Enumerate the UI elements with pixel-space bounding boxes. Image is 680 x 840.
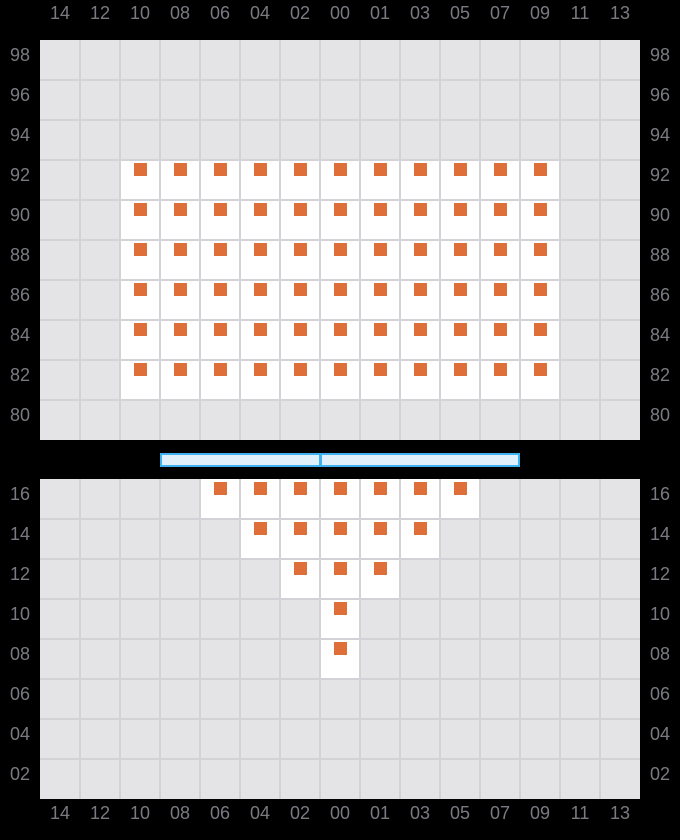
grid-cell-14-80[interactable] [40,400,80,440]
grid-cell-06-90[interactable] [200,200,240,240]
grid-cell-07-90[interactable] [480,200,520,240]
grid-cell-05-80[interactable] [440,400,480,440]
grid-cell-12-84[interactable] [80,320,120,360]
grid-cell-02-98[interactable] [280,40,320,80]
grid-cell-04-06[interactable] [240,679,280,719]
grid-cell-06-12[interactable] [200,559,240,599]
grid-cell-12-88[interactable] [80,240,120,280]
column-label: 01 [360,801,400,826]
grid-cell-01-90[interactable] [360,200,400,240]
grid-cell-00-98[interactable] [320,40,360,80]
grid-cell-08-14[interactable] [160,519,200,559]
grid-cell-01-14[interactable] [360,519,400,559]
row-label: 96 [640,75,680,115]
grid-cell-14-92[interactable] [40,160,80,200]
grid-cell-09-96[interactable] [520,80,560,120]
grid-cell-14-90[interactable] [40,200,80,240]
grid-cell-10-02[interactable] [120,759,160,799]
grid-cell-01-82[interactable] [360,360,400,400]
grid-cell-06-98[interactable] [200,40,240,80]
grid-cell-04-08[interactable] [240,639,280,679]
grid-cell-05-90[interactable] [440,200,480,240]
grid-cell-11-88[interactable] [560,240,600,280]
grid-cell-13-04[interactable] [600,719,640,759]
grid-cell-01-16[interactable] [360,479,400,519]
grid-cell-02-06[interactable] [280,679,320,719]
grid-cell-11-06[interactable] [560,679,600,719]
grid-cell-13-86[interactable] [600,280,640,320]
grid-cell-09-06[interactable] [520,679,560,719]
row-label: 10 [0,594,40,634]
grid-cell-13-10[interactable] [600,599,640,639]
grid-cell-13-96[interactable] [600,80,640,120]
grid-cell-10-90[interactable] [120,200,160,240]
grid-cell-07-04[interactable] [480,719,520,759]
grid-cell-08-02[interactable] [160,759,200,799]
grid-cell-12-98[interactable] [80,40,120,80]
grid-cell-03-04[interactable] [400,719,440,759]
grid-cell-05-94[interactable] [440,120,480,160]
grid-cell-14-06[interactable] [40,679,80,719]
row-label: 02 [640,754,680,794]
grid-cell-11-02[interactable] [560,759,600,799]
grid-cell-10-12[interactable] [120,559,160,599]
grid-cell-09-92[interactable] [520,160,560,200]
grid-cell-03-88[interactable] [400,240,440,280]
grid-cell-01-10[interactable] [360,599,400,639]
column-label: 08 [160,0,200,27]
grid-cell-05-06[interactable] [440,679,480,719]
grid-cell-03-12[interactable] [400,559,440,599]
grid-cell-09-10[interactable] [520,599,560,639]
grid-cell-07-08[interactable] [480,639,520,679]
row-label: 88 [0,235,40,275]
grid-cell-01-92[interactable] [360,160,400,200]
grid-cell-00-08[interactable] [320,639,360,679]
grid-cell-05-88[interactable] [440,240,480,280]
grid-cell-14-96[interactable] [40,80,80,120]
grid-cell-08-08[interactable] [160,639,200,679]
grid-cell-02-86[interactable] [280,280,320,320]
grid-cell-08-88[interactable] [160,240,200,280]
grid-cell-14-08[interactable] [40,639,80,679]
grid-cell-03-94[interactable] [400,120,440,160]
grid-cell-11-92[interactable] [560,160,600,200]
grid-cell-00-84[interactable] [320,320,360,360]
grid-cell-08-10[interactable] [160,599,200,639]
grid-cell-10-84[interactable] [120,320,160,360]
grid-cell-07-06[interactable] [480,679,520,719]
grid-cell-03-98[interactable] [400,40,440,80]
grid-cell-08-06[interactable] [160,679,200,719]
grid-cell-13-82[interactable] [600,360,640,400]
grid-cell-00-04[interactable] [320,719,360,759]
grid-cell-11-80[interactable] [560,400,600,440]
grid-cell-05-92[interactable] [440,160,480,200]
grid-cell-11-82[interactable] [560,360,600,400]
grid-cell-02-96[interactable] [280,80,320,120]
grid-cell-01-08[interactable] [360,639,400,679]
grid-cell-00-88[interactable] [320,240,360,280]
grid-cell-01-94[interactable] [360,120,400,160]
grid-cell-13-98[interactable] [600,40,640,80]
grid-cell-03-86[interactable] [400,280,440,320]
grid-cell-12-14[interactable] [80,519,120,559]
column-label: 12 [80,0,120,27]
grid-cell-13-08[interactable] [600,639,640,679]
grid-cell-03-84[interactable] [400,320,440,360]
grid-cell-08-16[interactable] [160,479,200,519]
grid-cell-05-96[interactable] [440,80,480,120]
grid-cell-08-84[interactable] [160,320,200,360]
row-label: 98 [0,35,40,75]
grid-cell-04-10[interactable] [240,599,280,639]
grid-cell-10-08[interactable] [120,639,160,679]
grid-cell-06-86[interactable] [200,280,240,320]
row-label: 04 [640,714,680,754]
grid-cell-01-12[interactable] [360,559,400,599]
grid-cell-13-84[interactable] [600,320,640,360]
grid-cell-02-88[interactable] [280,240,320,280]
grid-cell-06-02[interactable] [200,759,240,799]
column-label: 03 [400,801,440,826]
grid-cell-14-94[interactable] [40,120,80,160]
row-label: 80 [640,395,680,435]
grid-cell-12-06[interactable] [80,679,120,719]
grid-cell-06-94[interactable] [200,120,240,160]
grid-cell-03-14[interactable] [400,519,440,559]
grid-cell-13-90[interactable] [600,200,640,240]
grid-cell-07-92[interactable] [480,160,520,200]
grid-cell-14-02[interactable] [40,759,80,799]
grid-cell-05-02[interactable] [440,759,480,799]
grid-cell-11-94[interactable] [560,120,600,160]
grid-cell-10-98[interactable] [120,40,160,80]
column-label: 07 [480,801,520,826]
grid-cell-08-90[interactable] [160,200,200,240]
column-label: 11 [560,801,600,826]
grid-cell-10-04[interactable] [120,719,160,759]
grid-cell-09-12[interactable] [520,559,560,599]
grid-cell-07-02[interactable] [480,759,520,799]
grid-cell-04-86[interactable] [240,280,280,320]
grid-cell-00-90[interactable] [320,200,360,240]
grid-cell-05-82[interactable] [440,360,480,400]
grid-cell-02-92[interactable] [280,160,320,200]
grid-cell-09-14[interactable] [520,519,560,559]
grid-cell-10-10[interactable] [120,599,160,639]
grid-cell-11-14[interactable] [560,519,600,559]
grid-cell-06-80[interactable] [200,400,240,440]
grid-cell-04-12[interactable] [240,559,280,599]
grid-cell-13-94[interactable] [600,120,640,160]
grid-cell-05-12[interactable] [440,559,480,599]
grid-cell-13-02[interactable] [600,759,640,799]
grid-cell-09-16[interactable] [520,479,560,519]
column-label: 11 [560,0,600,27]
grid-cell-03-82[interactable] [400,360,440,400]
grid-cell-04-02[interactable] [240,759,280,799]
column-label: 03 [400,0,440,27]
grid-cell-11-84[interactable] [560,320,600,360]
grid-cell-02-90[interactable] [280,200,320,240]
grid-cell-06-04[interactable] [200,719,240,759]
grid-cell-14-12[interactable] [40,559,80,599]
column-label: 14 [40,801,80,826]
grid-cell-04-16[interactable] [240,479,280,519]
grid-cell-12-16[interactable] [80,479,120,519]
grid-cell-08-12[interactable] [160,559,200,599]
grid-cell-14-82[interactable] [40,360,80,400]
grid-cell-12-92[interactable] [80,160,120,200]
grid-cell-12-96[interactable] [80,80,120,120]
grid-cell-11-98[interactable] [560,40,600,80]
column-label: 14 [40,0,80,27]
grid-cell-13-80[interactable] [600,400,640,440]
grid-cell-01-86[interactable] [360,280,400,320]
grid-cell-11-12[interactable] [560,559,600,599]
grid-cell-06-84[interactable] [200,320,240,360]
grid-cell-14-04[interactable] [40,719,80,759]
grid-cell-04-04[interactable] [240,719,280,759]
grid-cell-07-82[interactable] [480,360,520,400]
grid-cell-12-10[interactable] [80,599,120,639]
grid-cell-14-14[interactable] [40,519,80,559]
grid-cell-02-80[interactable] [280,400,320,440]
grid-cell-04-94[interactable] [240,120,280,160]
grid-cell-08-80[interactable] [160,400,200,440]
grid-cell-04-88[interactable] [240,240,280,280]
grid-cell-08-92[interactable] [160,160,200,200]
row-label: 84 [640,315,680,355]
grid-cell-07-14[interactable] [480,519,520,559]
grid-cell-04-96[interactable] [240,80,280,120]
column-label: 13 [600,0,640,27]
grid-cell-06-14[interactable] [200,519,240,559]
grid-cell-04-14[interactable] [240,519,280,559]
grid-cell-01-98[interactable] [360,40,400,80]
grid-cell-05-86[interactable] [440,280,480,320]
grid-cell-04-80[interactable] [240,400,280,440]
grid-cell-06-96[interactable] [200,80,240,120]
grid-cell-12-90[interactable] [80,200,120,240]
grid-cell-02-12[interactable] [280,559,320,599]
grid-cell-13-16[interactable] [600,479,640,519]
grid-cell-06-08[interactable] [200,639,240,679]
grid-cell-09-02[interactable] [520,759,560,799]
grid-cell-14-88[interactable] [40,240,80,280]
grid-cell-06-06[interactable] [200,679,240,719]
grid-cell-01-88[interactable] [360,240,400,280]
grid-cell-00-14[interactable] [320,519,360,559]
grid-cell-07-96[interactable] [480,80,520,120]
grid-cell-12-86[interactable] [80,280,120,320]
grid-cell-06-92[interactable] [200,160,240,200]
grid-cell-05-14[interactable] [440,519,480,559]
grid-cell-02-84[interactable] [280,320,320,360]
grid-cell-10-94[interactable] [120,120,160,160]
grid-cell-10-86[interactable] [120,280,160,320]
grid-cell-06-82[interactable] [200,360,240,400]
grid-cell-10-14[interactable] [120,519,160,559]
grid-cell-10-88[interactable] [120,240,160,280]
board-canvas: 141210080604020001030507091113 141210080… [0,0,680,840]
grid-cell-02-02[interactable] [280,759,320,799]
grid-cell-04-90[interactable] [240,200,280,240]
slider-divider-handle[interactable] [319,453,322,467]
grid-cell-14-10[interactable] [40,599,80,639]
column-label: 10 [120,801,160,826]
grid-cell-03-02[interactable] [400,759,440,799]
grid-cell-07-98[interactable] [480,40,520,80]
grid-cell-12-82[interactable] [80,360,120,400]
grid-cell-10-80[interactable] [120,400,160,440]
grid-cell-12-80[interactable] [80,400,120,440]
grid-cell-00-02[interactable] [320,759,360,799]
grid-cell-11-96[interactable] [560,80,600,120]
grid-cell-03-96[interactable] [400,80,440,120]
grid-cell-00-96[interactable] [320,80,360,120]
grid-cell-01-96[interactable] [360,80,400,120]
grid-cell-10-82[interactable] [120,360,160,400]
grid-cell-03-90[interactable] [400,200,440,240]
column-label: 02 [280,801,320,826]
grid-cell-02-04[interactable] [280,719,320,759]
grid-cell-01-84[interactable] [360,320,400,360]
grid-cell-05-08[interactable] [440,639,480,679]
grid-cell-01-04[interactable] [360,719,400,759]
grid-cell-03-16[interactable] [400,479,440,519]
grid-cell-09-90[interactable] [520,200,560,240]
column-label: 09 [520,801,560,826]
grid-cell-10-92[interactable] [120,160,160,200]
grid-cell-03-06[interactable] [400,679,440,719]
grid-cell-09-08[interactable] [520,639,560,679]
grid-cell-08-96[interactable] [160,80,200,120]
grid-cell-04-82[interactable] [240,360,280,400]
grid-cell-09-94[interactable] [520,120,560,160]
grid-cell-10-06[interactable] [120,679,160,719]
grid-cell-05-98[interactable] [440,40,480,80]
grid-cell-02-82[interactable] [280,360,320,400]
grid-cell-09-98[interactable] [520,40,560,80]
grid-cell-14-16[interactable] [40,479,80,519]
grid-cell-00-86[interactable] [320,280,360,320]
grid-cell-05-10[interactable] [440,599,480,639]
grid-cell-11-10[interactable] [560,599,600,639]
grid-cell-12-94[interactable] [80,120,120,160]
grid-cell-07-10[interactable] [480,599,520,639]
column-label: 02 [280,0,320,27]
grid-cell-07-16[interactable] [480,479,520,519]
grid-cell-08-86[interactable] [160,280,200,320]
grid-cell-13-06[interactable] [600,679,640,719]
grid-cell-04-92[interactable] [240,160,280,200]
grid-cell-13-14[interactable] [600,519,640,559]
grid-cell-09-86[interactable] [520,280,560,320]
grid-cell-05-04[interactable] [440,719,480,759]
grid-cell-00-82[interactable] [320,360,360,400]
grid-cell-14-86[interactable] [40,280,80,320]
grid-cell-08-98[interactable] [160,40,200,80]
grid-cell-03-08[interactable] [400,639,440,679]
row-label: 84 [0,315,40,355]
grid-cell-02-94[interactable] [280,120,320,160]
grid-cell-04-84[interactable] [240,320,280,360]
grid-cell-09-88[interactable] [520,240,560,280]
grid-cell-07-84[interactable] [480,320,520,360]
grid-cell-01-02[interactable] [360,759,400,799]
grid-cell-11-86[interactable] [560,280,600,320]
grid-cell-09-84[interactable] [520,320,560,360]
column-label: 04 [240,801,280,826]
grid-cell-08-04[interactable] [160,719,200,759]
grid-cell-06-16[interactable] [200,479,240,519]
grid-cell-08-82[interactable] [160,360,200,400]
grid-cell-07-88[interactable] [480,240,520,280]
grid-cell-13-88[interactable] [600,240,640,280]
grid-cell-03-80[interactable] [400,400,440,440]
grid-cell-14-84[interactable] [40,320,80,360]
grid-cell-12-02[interactable] [80,759,120,799]
grid-cell-00-94[interactable] [320,120,360,160]
grid-cell-14-98[interactable] [40,40,80,80]
grid-cell-11-08[interactable] [560,639,600,679]
grid-cell-02-10[interactable] [280,599,320,639]
grid-cell-02-08[interactable] [280,639,320,679]
grid-cell-05-84[interactable] [440,320,480,360]
grid-cell-08-94[interactable] [160,120,200,160]
grid-cell-01-80[interactable] [360,400,400,440]
grid-cell-00-92[interactable] [320,160,360,200]
grid-cell-06-88[interactable] [200,240,240,280]
grid-cell-07-80[interactable] [480,400,520,440]
grid-cell-09-80[interactable] [520,400,560,440]
grid-cell-00-12[interactable] [320,559,360,599]
grid-cell-09-04[interactable] [520,719,560,759]
grid-cell-07-12[interactable] [480,559,520,599]
grid-cell-00-06[interactable] [320,679,360,719]
range-slider[interactable] [160,453,520,467]
grid-cell-00-80[interactable] [320,400,360,440]
grid-cell-11-90[interactable] [560,200,600,240]
grid-cell-12-08[interactable] [80,639,120,679]
grid-cell-00-10[interactable] [320,599,360,639]
grid-cell-12-04[interactable] [80,719,120,759]
grid-cell-06-10[interactable] [200,599,240,639]
grid-cell-13-12[interactable] [600,559,640,599]
grid-cell-10-96[interactable] [120,80,160,120]
grid-cell-01-06[interactable] [360,679,400,719]
grid-cell-10-16[interactable] [120,479,160,519]
grid-cell-03-92[interactable] [400,160,440,200]
grid-cell-04-98[interactable] [240,40,280,80]
grid-cell-07-86[interactable] [480,280,520,320]
grid-cell-13-92[interactable] [600,160,640,200]
row-label: 10 [640,594,680,634]
grid-cell-05-16[interactable] [440,479,480,519]
grid-cell-07-94[interactable] [480,120,520,160]
grid-cell-09-82[interactable] [520,360,560,400]
grid-cell-03-10[interactable] [400,599,440,639]
grid-cell-12-12[interactable] [80,559,120,599]
grid-cell-11-04[interactable] [560,719,600,759]
grid-cell-02-16[interactable] [280,479,320,519]
grid-cell-00-16[interactable] [320,479,360,519]
column-label: 00 [320,801,360,826]
grid-cell-02-14[interactable] [280,519,320,559]
grid-cell-11-16[interactable] [560,479,600,519]
